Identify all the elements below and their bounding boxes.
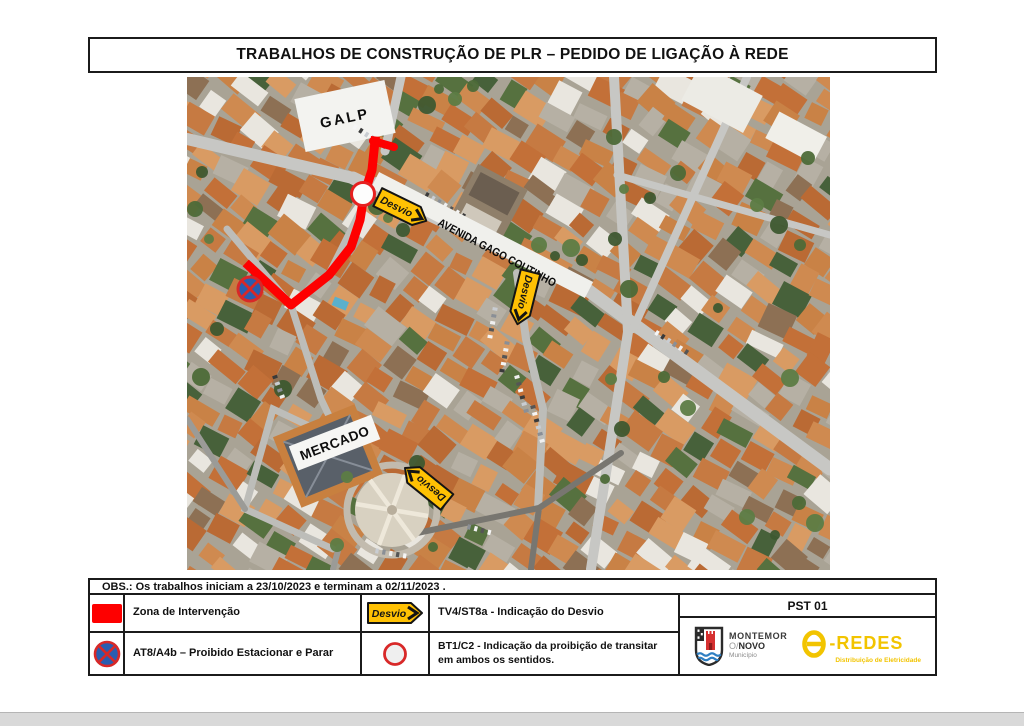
eredes-e-icon: [801, 629, 829, 659]
site-map-container: Desvio: [187, 77, 830, 570]
no-transit-sign: [352, 183, 375, 206]
eredes-tagline: Distribuição de Eletricidade: [835, 657, 921, 664]
legend-label-intervention: Zona de Intervenção: [125, 595, 362, 633]
montemor-wordmark: MONTEMOR O/NOVO Município: [729, 632, 787, 660]
legend-icon-no-stopping: [90, 633, 125, 674]
legend-icon-intervention-zone: [90, 595, 125, 633]
no-stopping-sign-icon: [93, 640, 121, 668]
eredes-logo: -REDES Distribuição de Eletricidade: [801, 629, 921, 664]
pst-code-cell: PST 01: [680, 595, 935, 618]
legend-label-no-transit: BT1/C2 - Indicação da proibição de trans…: [430, 633, 680, 674]
legend-label-no-stopping: AT8/A4b – Proibido Estacionar e Parar: [125, 633, 362, 674]
legend-label-desvio: TV4/ST8a - Indicação do Desvio: [430, 595, 680, 633]
legend-table: OBS.: Os trabalhos iniciam a 23/10/2023 …: [88, 578, 937, 676]
montemor-logo: MONTEMOR O/NOVO Município: [694, 626, 787, 666]
eredes-wordmark: -REDES: [829, 633, 903, 654]
bottom-page-edge: [0, 712, 1024, 726]
page-title: TRABALHOS DE CONSTRUÇÃO DE PLR – PEDIDO …: [236, 46, 788, 64]
obs-note: OBS.: Os trabalhos iniciam a 23/10/2023 …: [90, 580, 935, 595]
site-map: Desvio: [187, 77, 830, 570]
no-stopping-sign: [238, 277, 262, 301]
no-transit-sign-icon: [382, 641, 408, 667]
title-bar: TRABALHOS DE CONSTRUÇÃO DE PLR – PEDIDO …: [88, 37, 937, 73]
map-buildings: [187, 77, 830, 570]
legend-icon-desvio: [362, 595, 430, 633]
logos-cell: MONTEMOR O/NOVO Município -REDES Distrib…: [680, 618, 935, 674]
intervention-zone-swatch: [92, 604, 122, 623]
montemor-shield-icon: [694, 626, 724, 666]
document-page: { "title": "TRABALHOS DE CONSTRUÇÃO DE P…: [0, 0, 1024, 725]
pst-code: PST 01: [787, 599, 827, 613]
desvio-sign-icon: [365, 601, 425, 625]
legend-icon-no-transit: [362, 633, 430, 674]
